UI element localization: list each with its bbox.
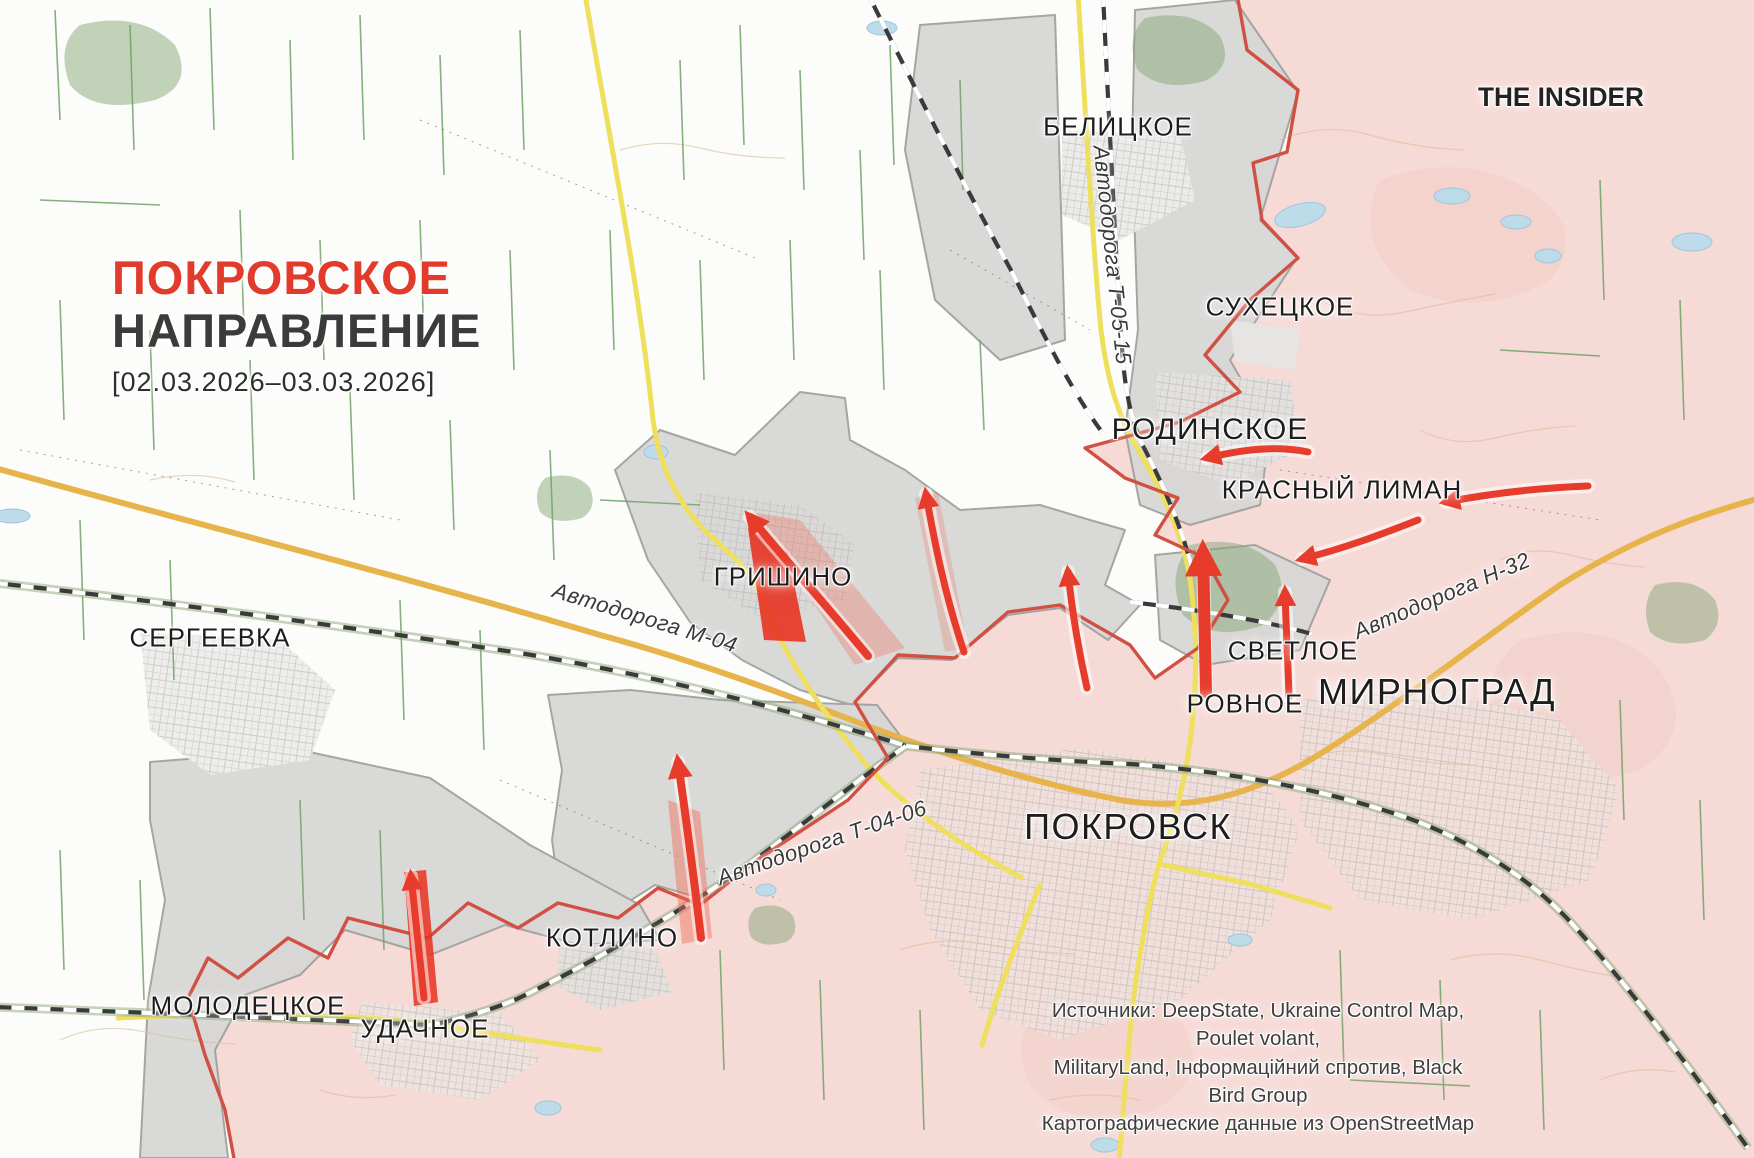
insider-logo: THE INSIDER <box>1478 82 1644 113</box>
city-label-molodetskoe: МОЛОДЕЦКОЕ <box>151 991 346 1022</box>
sources-line-2: MilitaryLand, Інформаційний спротив, Bla… <box>1038 1054 1478 1111</box>
road-label-m-04: Автодорога М-04 <box>550 578 741 659</box>
date-range: [02.03.2026–03.03.2026] <box>112 367 481 397</box>
city-label-rovnoe: РОВНОЕ <box>1187 689 1304 720</box>
map-canvas: ПОКРОВСКОЕ НАПРАВЛЕНИЕ [02.03.2026–03.03… <box>0 0 1754 1158</box>
city-label-belitskoe: БЕЛИЦКОЕ <box>1043 112 1193 143</box>
city-label-kotlino: КОТЛИНО <box>546 923 678 954</box>
sources-line-1: Источники: DeepState, Ukraine Control Ma… <box>1038 997 1478 1054</box>
city-label-svetloe: СВЕТЛОЕ <box>1228 636 1358 667</box>
sources-note: Источники: DeepState, Ukraine Control Ma… <box>1038 997 1478 1138</box>
city-label-sergeevka: СЕРГЕЕВКА <box>129 623 290 654</box>
city-label-rodinskoe: РОДИНСКОЕ <box>1112 413 1309 447</box>
sources-line-3: Картографические данные из OpenStreetMap <box>1038 1110 1478 1138</box>
road-label-n-32: Автодорога Н-32 <box>1350 547 1534 645</box>
title-line-2: НАПРАВЛЕНИЕ <box>112 305 481 358</box>
road-label-t-04-06: Автодорога Т-04-06 <box>714 795 931 891</box>
city-label-grishino: ГРИШИНО <box>714 562 853 593</box>
city-label-krasny-liman: КРАСНЫЙ ЛИМАН <box>1222 475 1463 506</box>
city-label-pokrovsk: ПОКРОВСК <box>1024 806 1232 848</box>
map-title: ПОКРОВСКОЕ НАПРАВЛЕНИЕ [02.03.2026–03.03… <box>112 252 481 397</box>
city-label-udachnoe: УДАЧНОЕ <box>361 1014 490 1045</box>
labels-layer: ПОКРОВСКОЕ НАПРАВЛЕНИЕ [02.03.2026–03.03… <box>0 0 1754 1158</box>
title-line-1: ПОКРОВСКОЕ <box>112 252 481 305</box>
road-label-t-05-15: Автодорога Т-05-15 <box>1088 144 1137 366</box>
city-label-sukhetskoe: СУХЕЦКОЕ <box>1206 292 1355 323</box>
city-label-mirnograd: МИРНОГРАД <box>1318 671 1556 713</box>
